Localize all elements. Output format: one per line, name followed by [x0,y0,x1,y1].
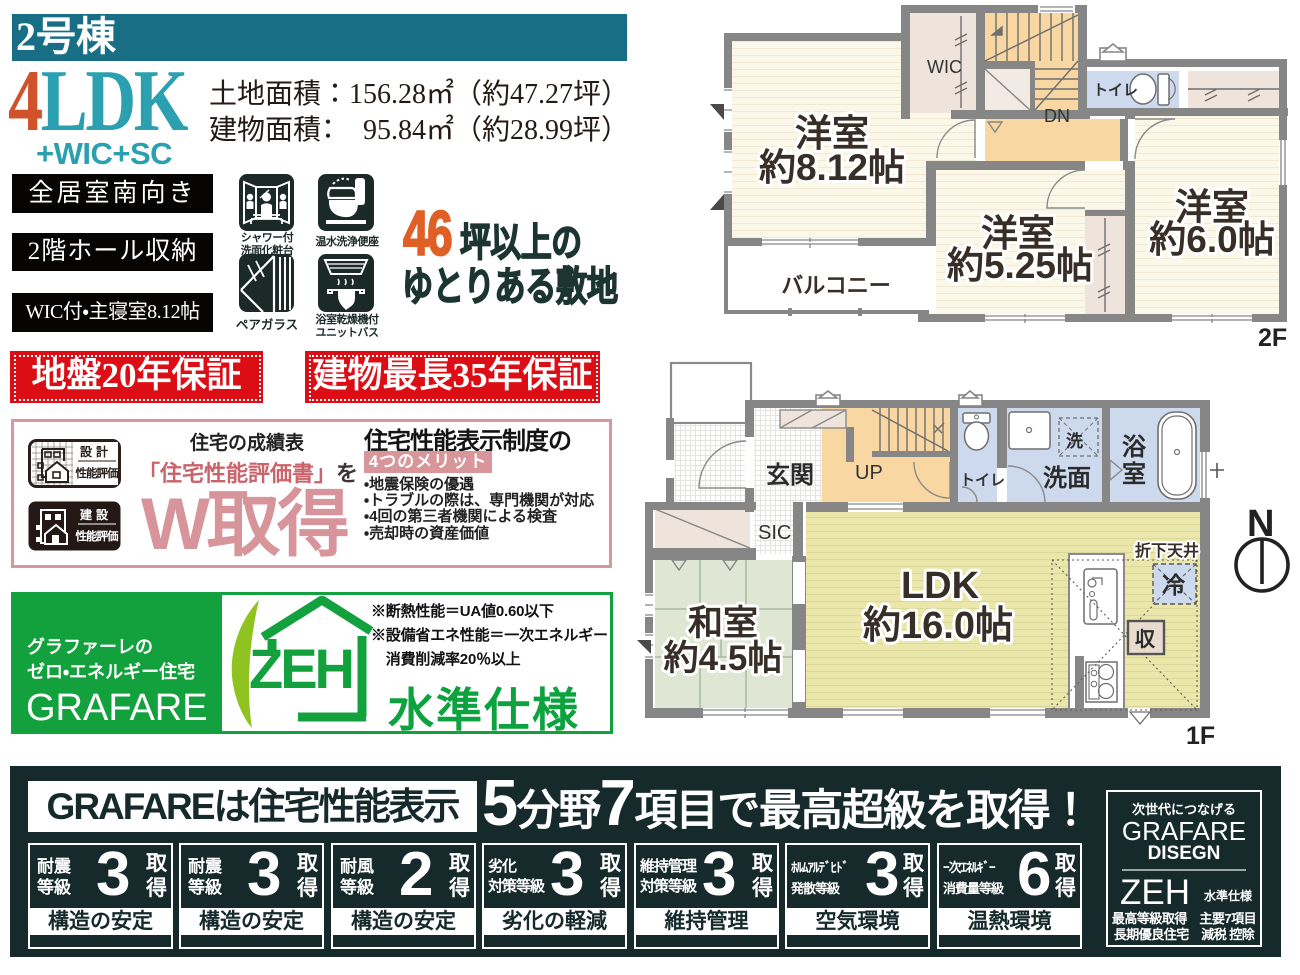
svg-text:約5.25帖: 約5.25帖 [947,245,1093,286]
svg-text:室: 室 [1122,461,1146,488]
svg-text:性能評価: 性能評価 [76,466,119,480]
svg-text:収: 収 [1135,627,1156,651]
svg-text:バルコニー: バルコニー [781,273,891,298]
svg-text:2F: 2F [1258,324,1287,352]
svg-text:UP: UP [855,462,883,484]
svg-text:ZEH: ZEH [249,637,352,700]
svg-text:玄関: 玄関 [766,462,814,489]
svg-text:1F: 1F [1186,722,1215,750]
svg-text:LDK: LDK [901,565,980,607]
svg-text:約8.12帖: 約8.12帖 [759,147,905,188]
svg-text:洗: 洗 [1066,431,1083,451]
svg-text:約16.0帖: 約16.0帖 [863,605,1013,647]
svg-text:冷: 冷 [1162,572,1186,598]
svg-text:設計: 設計 [80,444,112,459]
svg-text:DN: DN [1044,106,1070,126]
svg-text:約6.0帖: 約6.0帖 [1149,219,1274,260]
svg-text:建設: 建設 [79,507,112,522]
svg-text:トイレ: トイレ [1093,82,1138,99]
svg-text:トイレ: トイレ [960,472,1005,489]
svg-text:WIC: WIC [927,57,962,77]
svg-text:洗面: 洗面 [1043,465,1091,492]
svg-text:折下天井: 折下天井 [1135,541,1199,560]
svg-text:和室: 和室 [688,604,758,643]
svg-text:N: N [1247,503,1274,545]
svg-text:浴: 浴 [1122,433,1146,461]
svg-text:SIC: SIC [758,522,791,544]
svg-text:性能評価: 性能評価 [76,529,119,543]
svg-text:約4.5帖: 約4.5帖 [664,639,783,678]
